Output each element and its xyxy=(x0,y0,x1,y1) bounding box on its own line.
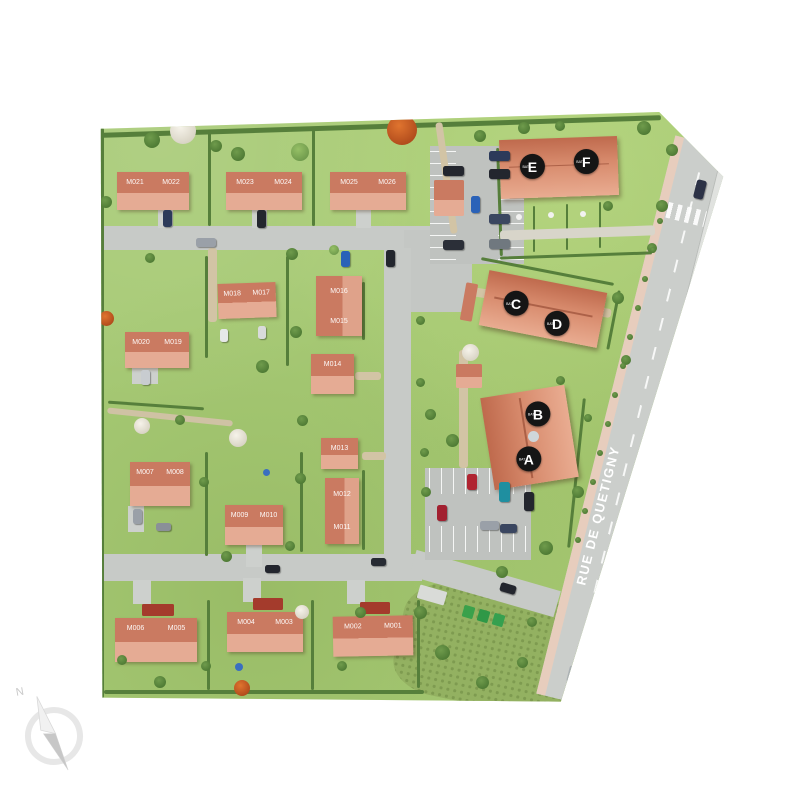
tree xyxy=(462,344,479,361)
house-m025-m026[interactable]: M025 M026 xyxy=(330,172,406,210)
house-m009-m010[interactable]: M009 M010 xyxy=(225,505,283,545)
tree xyxy=(297,415,308,426)
house-label: M006 xyxy=(127,625,145,662)
car xyxy=(265,565,280,573)
compass-north-letter: N xyxy=(15,686,25,699)
driveway xyxy=(347,580,365,604)
tree xyxy=(496,566,508,578)
tree xyxy=(290,326,302,338)
tree xyxy=(446,434,459,447)
internal-road-north xyxy=(101,226,439,250)
hedge xyxy=(362,470,365,550)
house-m014[interactable]: M014 xyxy=(311,354,354,394)
house-label: M021 xyxy=(126,179,144,210)
badge-prefix: BAT. xyxy=(547,322,554,326)
house-label: M017 xyxy=(252,289,270,318)
house-label: M002 xyxy=(344,623,362,656)
tree xyxy=(355,607,366,618)
house-label: M022 xyxy=(162,179,180,210)
house-m004-m003[interactable]: M004 M003 xyxy=(227,612,303,652)
roadside-bush xyxy=(590,479,596,485)
house-label: M003 xyxy=(275,619,293,652)
tree xyxy=(295,473,306,484)
car xyxy=(163,210,172,227)
car xyxy=(257,210,266,228)
roadside-bush xyxy=(657,218,663,224)
tree xyxy=(144,132,160,148)
tree xyxy=(134,418,150,434)
house-label: M013 xyxy=(331,445,349,469)
car xyxy=(480,521,499,530)
house-m006-m005[interactable]: M006 M005 xyxy=(115,618,197,662)
house-m021-m022[interactable]: M021 M022 xyxy=(117,172,189,210)
car xyxy=(133,509,142,524)
house-label: M019 xyxy=(164,339,182,368)
tree xyxy=(556,376,565,385)
house-label: M023 xyxy=(236,179,254,210)
car xyxy=(499,482,510,502)
house-m018-m017[interactable]: M018 M017 xyxy=(217,282,276,319)
garden-object xyxy=(580,211,586,217)
car xyxy=(500,524,517,533)
house-label: M001 xyxy=(384,623,402,656)
house-label: M018 xyxy=(223,290,241,319)
tree xyxy=(154,676,166,688)
footpath xyxy=(107,407,233,426)
tree xyxy=(420,448,429,457)
car xyxy=(156,523,171,531)
roadside-bush xyxy=(635,305,641,311)
garden-object xyxy=(516,214,522,220)
tree xyxy=(337,661,347,671)
hedge xyxy=(100,128,104,698)
tree xyxy=(474,130,486,142)
roadside-bush xyxy=(627,334,633,340)
hedge xyxy=(286,256,289,366)
internal-road-central xyxy=(384,248,411,566)
house-label: M010 xyxy=(260,512,278,545)
tree xyxy=(99,311,114,326)
footpath xyxy=(208,248,217,322)
tree xyxy=(329,245,339,255)
driveway xyxy=(246,543,262,567)
house-label: M025 xyxy=(340,179,358,210)
car xyxy=(471,196,480,213)
house-label: M009 xyxy=(231,512,249,545)
terrace xyxy=(253,598,283,610)
house-label: M014 xyxy=(324,361,342,394)
car xyxy=(581,642,595,662)
tree xyxy=(425,409,436,420)
tree xyxy=(199,477,209,487)
house-label: M016 xyxy=(330,288,348,295)
tree xyxy=(295,605,309,619)
driveway xyxy=(133,580,151,604)
tree xyxy=(666,144,678,156)
tree xyxy=(416,316,425,325)
badge-prefix: BAT. xyxy=(528,412,535,416)
tree xyxy=(175,415,185,425)
tree xyxy=(414,606,427,619)
house-m016-m015[interactable]: M016 M015 xyxy=(316,276,362,336)
garden-object xyxy=(548,212,554,218)
hedge xyxy=(566,204,568,250)
car xyxy=(524,492,534,511)
car xyxy=(196,238,216,247)
car xyxy=(443,166,464,176)
roadside-bush xyxy=(597,450,603,456)
hedge xyxy=(300,452,303,552)
tree xyxy=(416,378,425,387)
building-e-f[interactable]: BAT. E BAT. F xyxy=(499,136,619,199)
building-badge-c[interactable]: BAT. C xyxy=(504,291,529,316)
house-label: M026 xyxy=(378,179,396,210)
car xyxy=(443,240,464,250)
tree xyxy=(584,414,592,422)
building-badge-e[interactable]: BAT. E xyxy=(520,154,545,179)
roadside-bush xyxy=(620,363,626,369)
tree xyxy=(435,645,450,660)
tree xyxy=(117,655,127,665)
house-m013[interactable]: M013 xyxy=(321,438,358,469)
house-m023-m024[interactable]: M023 M024 xyxy=(226,172,302,210)
tree xyxy=(612,292,624,304)
hedge xyxy=(362,282,365,340)
car xyxy=(437,505,447,521)
car xyxy=(341,251,350,267)
tree xyxy=(518,122,530,134)
garden-annex xyxy=(456,364,482,388)
house-label: M024 xyxy=(274,179,292,210)
car xyxy=(489,214,510,224)
house-label: M004 xyxy=(237,619,255,652)
badge-prefix: BAT. xyxy=(519,457,526,461)
roadside-bush xyxy=(642,276,648,282)
house-label: M007 xyxy=(136,469,154,506)
house-label: M005 xyxy=(168,625,186,662)
hedge xyxy=(311,600,314,690)
house-m020-m019[interactable]: M020 M019 xyxy=(125,332,189,368)
roadside-bush xyxy=(582,508,588,514)
roadside-bush xyxy=(575,537,581,543)
tree xyxy=(231,147,245,161)
house-label: M011 xyxy=(334,524,351,531)
house-label: M015 xyxy=(330,318,348,325)
house-m007-m008[interactable]: M007 M008 xyxy=(130,462,190,506)
tree xyxy=(145,253,155,263)
car xyxy=(141,370,150,385)
site-plan-canvas: RUE DE QUETIGNY M021 M022 M023 M024 M025… xyxy=(0,0,800,800)
footpath xyxy=(362,452,386,460)
tree xyxy=(387,115,417,145)
roadside-bush xyxy=(605,421,611,427)
compass-north-icon: N xyxy=(10,666,102,794)
car xyxy=(258,326,266,339)
tree xyxy=(100,196,112,208)
terrace xyxy=(142,604,174,616)
roadside-bush xyxy=(650,247,656,253)
tree xyxy=(210,140,222,152)
carport xyxy=(434,180,464,216)
tree xyxy=(637,121,651,135)
tree xyxy=(421,487,431,497)
garden-object xyxy=(528,431,539,442)
tree xyxy=(572,486,584,498)
garden-object xyxy=(263,469,270,476)
building-badge-a[interactable]: BAT. A xyxy=(516,446,541,471)
badge-prefix: BAT. xyxy=(506,302,513,306)
tree xyxy=(656,200,668,212)
badge-prefix: BAT. xyxy=(522,165,529,169)
car xyxy=(489,151,510,161)
house-m012-m011[interactable]: M012 M011 xyxy=(325,478,359,544)
car xyxy=(386,250,395,267)
tree xyxy=(285,541,295,551)
roadside-bush xyxy=(612,392,618,398)
hedge xyxy=(207,600,210,690)
house-label: M020 xyxy=(132,339,150,368)
tree xyxy=(286,248,298,260)
tree xyxy=(603,201,613,211)
house-label: M012 xyxy=(333,491,351,498)
tree xyxy=(221,551,232,562)
car xyxy=(371,558,386,566)
hedge xyxy=(205,452,208,556)
garden-object xyxy=(235,663,243,671)
hedge xyxy=(599,202,601,248)
car xyxy=(467,474,477,490)
footpath xyxy=(355,372,381,380)
tree xyxy=(170,118,196,144)
tree xyxy=(527,617,537,627)
tree xyxy=(555,121,565,131)
tree xyxy=(256,360,269,373)
car xyxy=(220,329,228,342)
hedge xyxy=(312,130,315,226)
building-c-d[interactable]: BAT. C BAT. D xyxy=(479,270,607,348)
building-badge-b[interactable]: BAT. B xyxy=(525,401,550,426)
building-badge-d[interactable]: BAT. D xyxy=(545,311,570,336)
tree xyxy=(517,657,528,668)
tree xyxy=(234,680,250,696)
tree xyxy=(476,676,489,689)
hedge xyxy=(104,690,424,694)
tree xyxy=(539,541,553,555)
tree xyxy=(291,143,309,161)
house-m002-m001[interactable]: M002 M001 xyxy=(333,615,414,656)
tree xyxy=(229,429,247,447)
car xyxy=(489,169,510,179)
car xyxy=(489,239,510,249)
badge-prefix: BAT. xyxy=(576,160,583,164)
building-badge-f[interactable]: BAT. F xyxy=(574,149,599,174)
house-label: M008 xyxy=(166,469,184,506)
tree xyxy=(201,661,211,671)
